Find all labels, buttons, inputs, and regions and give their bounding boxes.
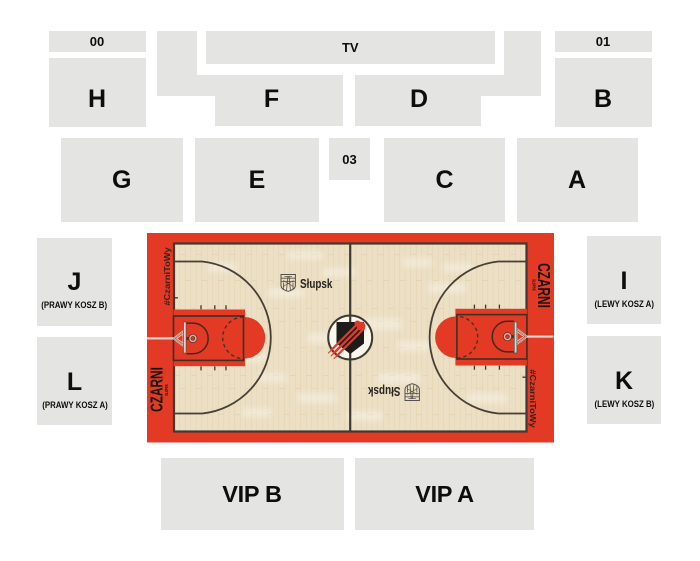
svg-text:Słupsk: Słupsk (300, 278, 333, 291)
svg-text:SŁUPSK: SŁUPSK (164, 384, 169, 396)
svg-text:#CzarniToWy: #CzarniToWy (163, 247, 172, 305)
